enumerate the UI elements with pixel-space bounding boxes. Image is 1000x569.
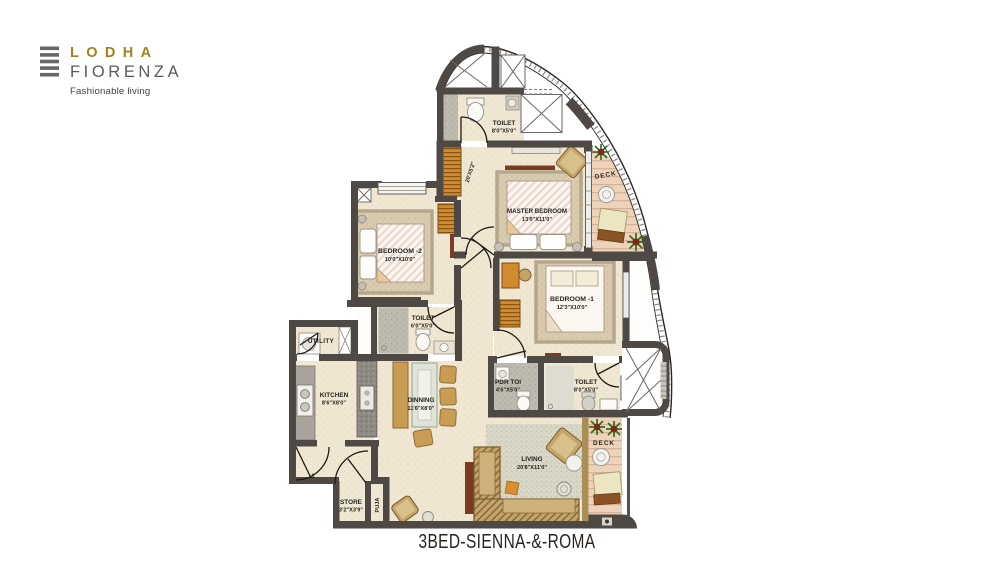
svg-text:MASTER BEDROOM: MASTER BEDROOM <box>507 208 567 215</box>
svg-text:3'2"X3'9": 3'2"X3'9" <box>339 508 363 514</box>
svg-text:DINNING: DINNING <box>408 397 435 404</box>
svg-text:11'6"X8'0": 11'6"X8'0" <box>408 406 435 412</box>
svg-text:12'3"X10'0": 12'3"X10'0" <box>557 305 588 311</box>
svg-text:PDR TOI: PDR TOI <box>495 379 521 386</box>
svg-text:UTILITY: UTILITY <box>308 338 335 345</box>
svg-text:PUJA: PUJA <box>375 498 381 513</box>
svg-text:8'6"X8'0": 8'6"X8'0" <box>322 401 346 407</box>
svg-text:8'0"X5'0": 8'0"X5'0" <box>492 129 516 135</box>
svg-text:DECK: DECK <box>593 440 615 447</box>
svg-text:20'8"X11'0": 20'8"X11'0" <box>517 465 547 471</box>
svg-text:3BED-SIENNA-&-ROMA: 3BED-SIENNA-&-ROMA <box>419 530 596 553</box>
svg-text:BEDROOM -2: BEDROOM -2 <box>378 248 422 255</box>
svg-text:LIVING: LIVING <box>521 456 542 463</box>
svg-text:4'6"X5'0": 4'6"X5'0" <box>496 388 520 394</box>
svg-text:KITCHEN: KITCHEN <box>320 392 349 399</box>
svg-text:STORE: STORE <box>340 499 363 506</box>
svg-text:6'0"X5'0": 6'0"X5'0" <box>411 324 435 330</box>
svg-text:13'0"X11'0": 13'0"X11'0" <box>522 217 552 223</box>
svg-text:8'0"X5'0": 8'0"X5'0" <box>574 388 598 394</box>
svg-text:1: 1 <box>311 473 315 480</box>
svg-text:TOILET: TOILET <box>493 120 516 127</box>
svg-text:TOILET: TOILET <box>575 379 598 386</box>
svg-text:10'0"X10'0": 10'0"X10'0" <box>385 257 416 263</box>
svg-text:BEDROOM -1: BEDROOM -1 <box>550 296 594 303</box>
svg-text:TOILET: TOILET <box>412 315 435 322</box>
